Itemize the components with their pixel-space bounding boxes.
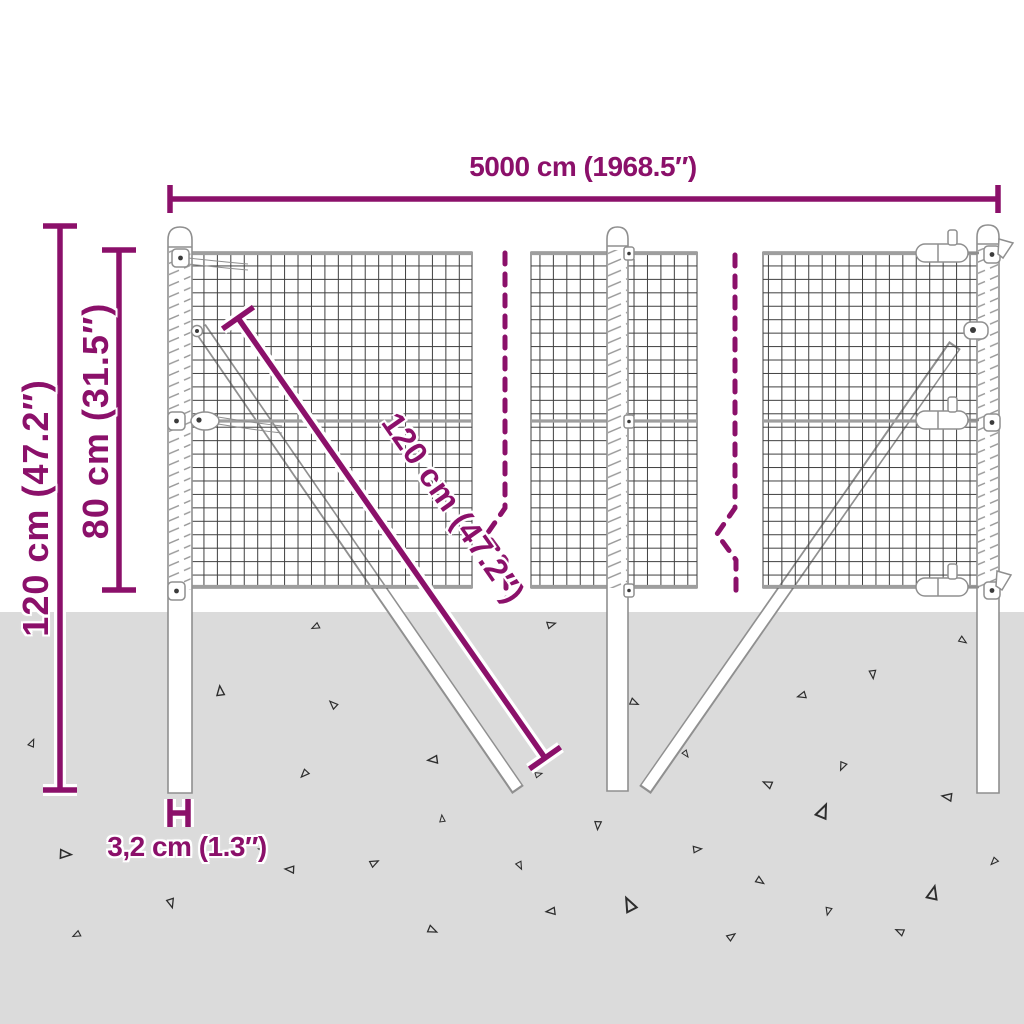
dimension-label-post-width: 3,2 cm (1.3″)	[107, 831, 266, 863]
mesh-panels	[182, 252, 978, 588]
dimension-label-mesh-height: 80 cm (31.5″)	[75, 303, 117, 539]
break-line-right	[717, 255, 736, 598]
dimension-label-total-height: 120 cm (47.2″)	[15, 379, 57, 636]
dimension-label-total-width: 5000 cm (1968.5″)	[469, 151, 697, 183]
fence-dimension-diagram: 5000 cm (1968.5″) 120 cm (47.2″) 80 cm (…	[0, 0, 1024, 1024]
flag-bottom	[996, 571, 1011, 590]
flag-top	[998, 239, 1013, 258]
